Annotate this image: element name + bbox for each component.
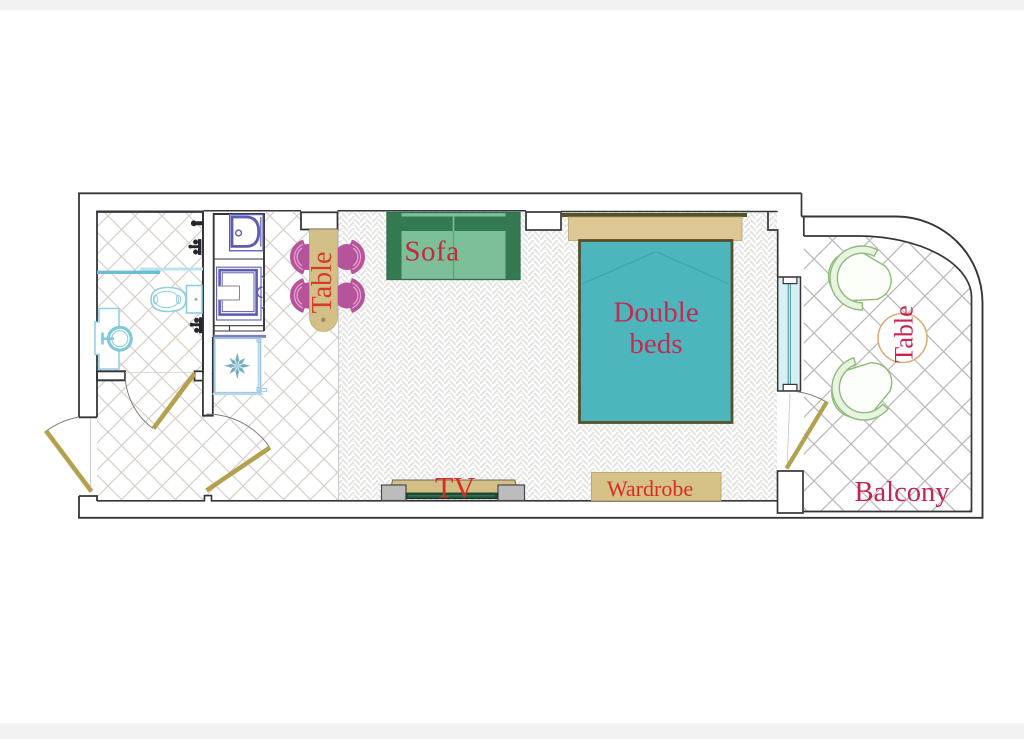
svg-text:TV: TV xyxy=(435,472,475,505)
svg-text:Table: Table xyxy=(890,305,919,362)
svg-text:Sofa: Sofa xyxy=(404,236,459,268)
svg-text:beds: beds xyxy=(629,328,682,360)
svg-text:Double: Double xyxy=(613,297,698,329)
svg-text:Wardrobe: Wardrobe xyxy=(607,476,693,501)
svg-text:Table: Table xyxy=(307,252,338,314)
svg-text:Balcony: Balcony xyxy=(855,477,951,508)
